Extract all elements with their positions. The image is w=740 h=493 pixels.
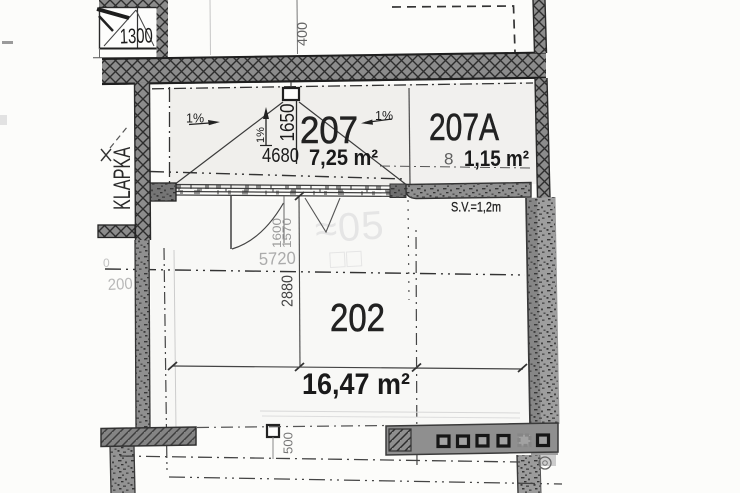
svg-text:5720: 5720 [258, 248, 296, 269]
svg-text:1650: 1650 [277, 104, 299, 142]
svg-text:7,25 m²: 7,25 m² [309, 145, 378, 170]
svg-text:200: 200 [107, 276, 133, 294]
svg-text:500: 500 [281, 432, 296, 454]
svg-text:0: 0 [103, 256, 110, 270]
svg-text:1570: 1570 [282, 218, 294, 248]
svg-text:S.V.=1,2m: S.V.=1,2m [451, 199, 501, 215]
svg-text:KLAPKA: KLAPKA [109, 147, 136, 210]
svg-text:16,47 m²: 16,47 m² [302, 368, 410, 401]
svg-text:1,15 m²: 1,15 m² [464, 146, 529, 171]
svg-text:2880: 2880 [280, 275, 297, 307]
svg-text:□□: □□ [329, 242, 364, 274]
svg-text:1300: 1300 [119, 24, 153, 48]
svg-text:202: 202 [330, 297, 385, 340]
svg-text:4680: 4680 [262, 145, 299, 167]
svg-text:8: 8 [444, 150, 453, 169]
svg-text:207A: 207A [429, 107, 500, 149]
svg-text:400: 400 [295, 22, 311, 46]
svg-text:1%: 1% [255, 127, 267, 143]
